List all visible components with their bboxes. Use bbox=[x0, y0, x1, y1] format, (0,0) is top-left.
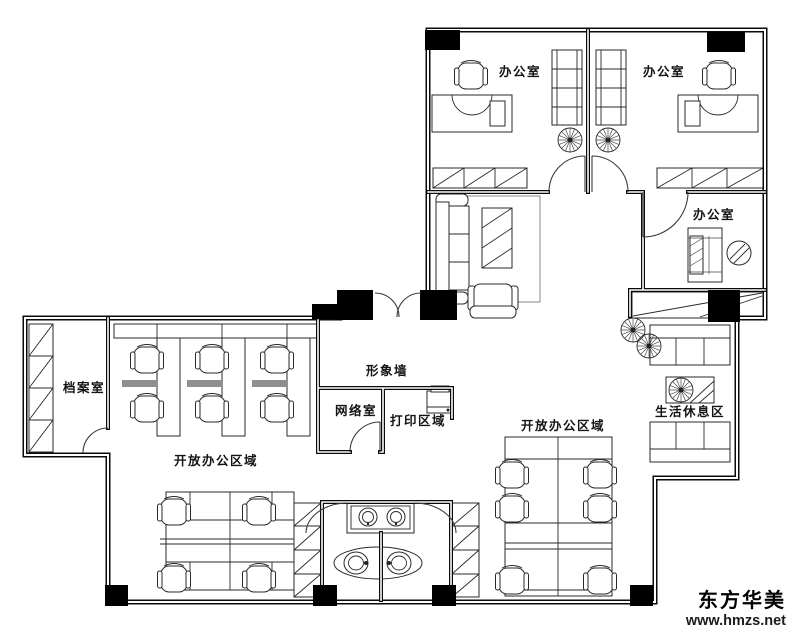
floor-plan: 办公室 办公室 办公室 档案室 形象墙 网络室 打印区域 开放办公区域 开放办公… bbox=[0, 0, 800, 640]
column bbox=[105, 585, 128, 606]
bookshelf bbox=[596, 50, 626, 125]
swivel-chair-icon bbox=[727, 241, 751, 265]
desk-return bbox=[122, 380, 157, 387]
desk-return bbox=[187, 380, 222, 387]
column bbox=[432, 585, 456, 606]
column bbox=[425, 30, 460, 50]
room-label-rest-area: 生活休息区 bbox=[655, 404, 725, 419]
archive-furniture bbox=[29, 324, 53, 452]
sofa-back bbox=[436, 202, 449, 294]
column bbox=[313, 585, 337, 606]
room-label-office-top-left: 办公室 bbox=[499, 64, 541, 79]
watermark-brand: 东方华美 bbox=[698, 588, 786, 612]
floor-plan-page: 办公室 办公室 办公室 档案室 形象墙 网络室 打印区域 开放办公区域 开放办公… bbox=[0, 0, 800, 640]
room-label-open-office-right: 开放办公区域 bbox=[521, 418, 605, 433]
workstation-cluster-bottom-left bbox=[158, 492, 301, 592]
room-label-image-wall: 形象墙 bbox=[366, 363, 408, 378]
room-label-network-room: 网络室 bbox=[335, 403, 377, 418]
armchair-back bbox=[470, 306, 516, 318]
plant-icon bbox=[637, 334, 661, 358]
room-label-office-side: 办公室 bbox=[693, 207, 735, 222]
desk-return bbox=[685, 101, 700, 126]
bookshelf bbox=[552, 50, 582, 125]
plant-icon bbox=[596, 128, 620, 152]
sofa bbox=[650, 325, 730, 365]
column bbox=[708, 290, 740, 322]
workstation-clusters-bottom-right bbox=[496, 437, 617, 596]
sofa-seat bbox=[449, 206, 469, 290]
room-label-archive: 档案室 bbox=[63, 380, 105, 395]
column bbox=[630, 585, 653, 606]
room-label-print-area: 打印区域 bbox=[390, 413, 446, 428]
sofa bbox=[650, 422, 730, 462]
room-label-open-office-left: 开放办公区域 bbox=[174, 453, 258, 468]
plant-icon bbox=[558, 128, 582, 152]
desk-return bbox=[490, 101, 505, 126]
plant-icon bbox=[669, 378, 693, 402]
print-area-furniture bbox=[427, 386, 453, 413]
column bbox=[707, 32, 745, 52]
column bbox=[420, 290, 457, 320]
room-label-office-top-right: 办公室 bbox=[643, 64, 685, 79]
column bbox=[312, 304, 350, 319]
watermark: 东方华美 www.hmzs.net bbox=[685, 588, 786, 629]
desk-return bbox=[252, 380, 287, 387]
watermark-url: www.hmzs.net bbox=[685, 613, 786, 629]
